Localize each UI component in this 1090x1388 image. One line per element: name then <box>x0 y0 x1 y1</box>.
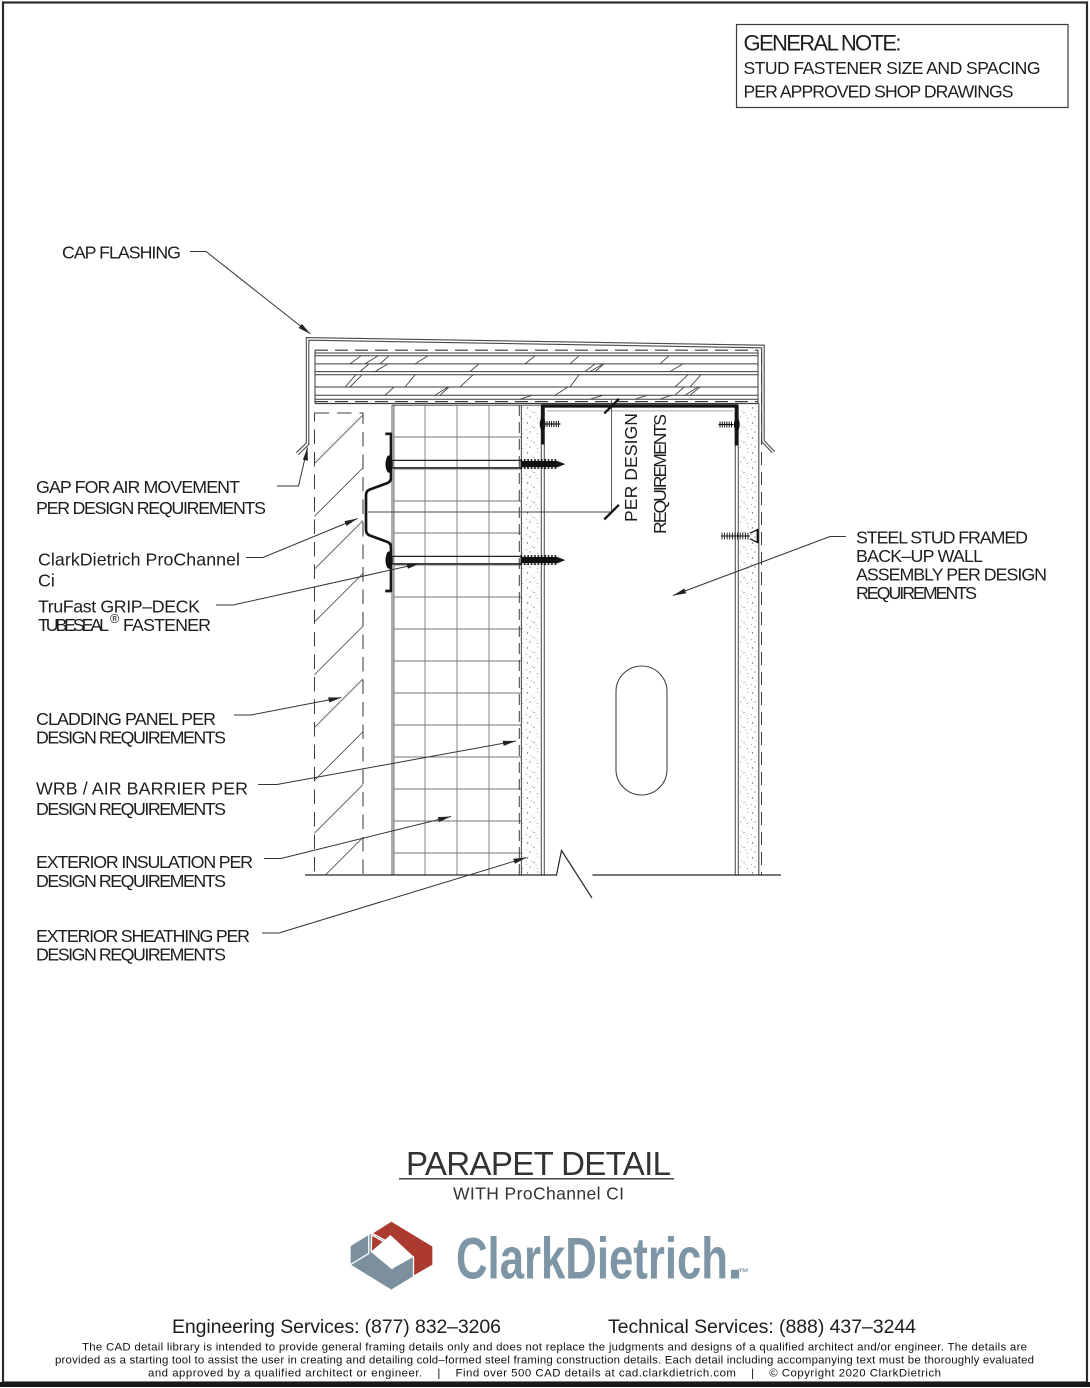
svg-text:and approved by a qualified ar: and approved by a qualified architect or… <box>148 1368 941 1380</box>
svg-text:STEEL STUD FRAMED: STEEL STUD FRAMED <box>856 528 1028 548</box>
svg-text:DESIGN REQUIREMENTS: DESIGN REQUIREMENTS <box>36 728 226 748</box>
svg-text:ClarkDietrich: ClarkDietrich <box>456 1227 728 1292</box>
svg-text:PER DESIGN: PER DESIGN <box>621 413 641 522</box>
svg-text:GENERAL NOTE:: GENERAL NOTE: <box>744 31 903 56</box>
svg-text:GAP FOR AIR MOVEMENT: GAP FOR AIR MOVEMENT <box>36 477 240 497</box>
svg-text:EXTERIOR INSULATION PER: EXTERIOR INSULATION PER <box>36 852 253 872</box>
svg-text:DESIGN REQUIREMENTS: DESIGN REQUIREMENTS <box>36 945 226 965</box>
svg-text:PER DESIGN REQUIREMENTS: PER DESIGN REQUIREMENTS <box>36 498 266 518</box>
svg-text:PER APPROVED SHOP DRAWINGS: PER APPROVED SHOP DRAWINGS <box>744 82 1014 102</box>
svg-text:DESIGN REQUIREMENTS: DESIGN REQUIREMENTS <box>36 799 226 819</box>
svg-text:™: ™ <box>738 1267 749 1279</box>
svg-text:provided as a starting tool to: provided as a starting tool to assist th… <box>55 1355 1034 1367</box>
svg-text:REQUIREMENTS: REQUIREMENTS <box>650 414 670 534</box>
svg-text:FASTENER: FASTENER <box>123 615 211 635</box>
svg-text:Ci: Ci <box>38 571 55 591</box>
svg-text:Engineering Services: (877) 83: Engineering Services: (877) 832–3206 <box>172 1316 501 1338</box>
svg-text:.: . <box>727 1227 743 1292</box>
svg-text:DESIGN REQUIREMENTS: DESIGN REQUIREMENTS <box>36 871 226 891</box>
svg-text:PARAPET DETAIL: PARAPET DETAIL <box>406 1145 671 1182</box>
svg-text:BACK–UP WALL: BACK–UP WALL <box>856 546 983 566</box>
svg-text:STUD FASTENER SIZE AND SPACING: STUD FASTENER SIZE AND SPACING <box>744 58 1041 78</box>
svg-text:REQUIREMENTS: REQUIREMENTS <box>856 583 977 603</box>
svg-text:Technical Services: (888) 437–: Technical Services: (888) 437–3244 <box>608 1316 916 1338</box>
svg-text:ASSEMBLY PER DESIGN: ASSEMBLY PER DESIGN <box>856 565 1047 585</box>
svg-text:WITH ProChannel CI: WITH ProChannel CI <box>453 1184 624 1204</box>
svg-text:CLADDING PANEL PER: CLADDING PANEL PER <box>36 709 216 729</box>
svg-text:The CAD detail library is inte: The CAD detail library is intended to pr… <box>82 1342 1027 1354</box>
svg-text:WRB / AIR BARRIER PER: WRB / AIR BARRIER PER <box>36 779 248 799</box>
svg-text:CAP FLASHING: CAP FLASHING <box>62 243 181 263</box>
svg-text:ClarkDietrich ProChannel: ClarkDietrich ProChannel <box>38 550 240 570</box>
svg-text:TUBESEAL: TUBESEAL <box>38 615 109 635</box>
svg-text:®: ® <box>110 612 120 626</box>
svg-text:EXTERIOR SHEATHING PER: EXTERIOR SHEATHING PER <box>36 926 250 946</box>
